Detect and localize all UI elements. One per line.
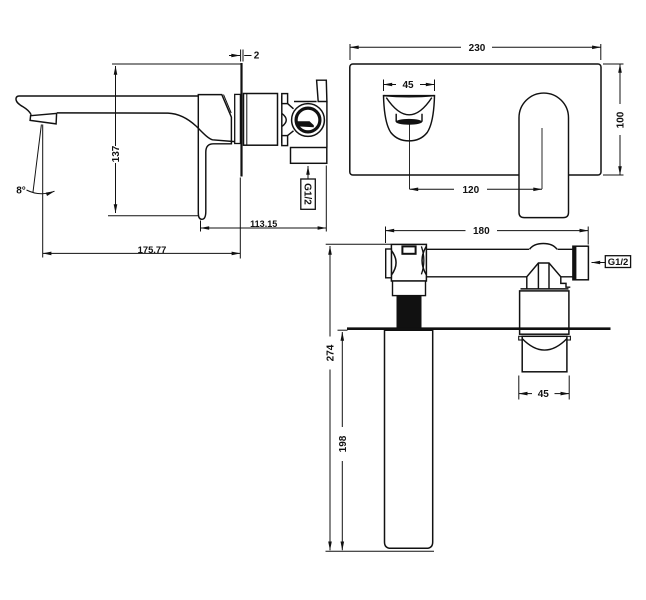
svg-text:120: 120 (462, 185, 479, 196)
svg-text:G1/2: G1/2 (302, 183, 313, 205)
svg-text:2: 2 (254, 51, 260, 62)
svg-text:230: 230 (469, 43, 486, 54)
svg-text:137: 137 (111, 145, 122, 162)
svg-text:113.15: 113.15 (250, 219, 277, 229)
svg-text:180: 180 (473, 226, 490, 237)
svg-text:198: 198 (338, 435, 349, 452)
svg-text:45: 45 (538, 389, 550, 400)
svg-text:100: 100 (616, 111, 627, 128)
svg-text:274: 274 (326, 344, 337, 361)
svg-text:G1/2: G1/2 (608, 257, 629, 268)
svg-text:8°: 8° (16, 186, 26, 197)
svg-text:175.77: 175.77 (138, 244, 167, 255)
svg-text:45: 45 (402, 80, 414, 91)
